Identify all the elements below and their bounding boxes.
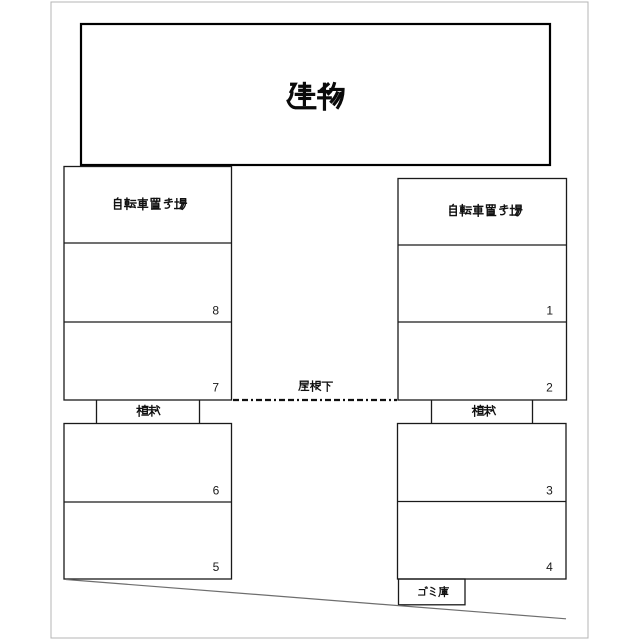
- svg-text:1: 1: [546, 303, 553, 317]
- svg-text:5: 5: [213, 560, 220, 574]
- svg-text:2: 2: [546, 381, 553, 395]
- svg-text:4: 4: [546, 560, 553, 574]
- svg-text:3: 3: [546, 483, 553, 497]
- svg-text:8: 8: [212, 303, 219, 317]
- svg-text:7: 7: [212, 381, 219, 395]
- svg-text:6: 6: [213, 483, 220, 497]
